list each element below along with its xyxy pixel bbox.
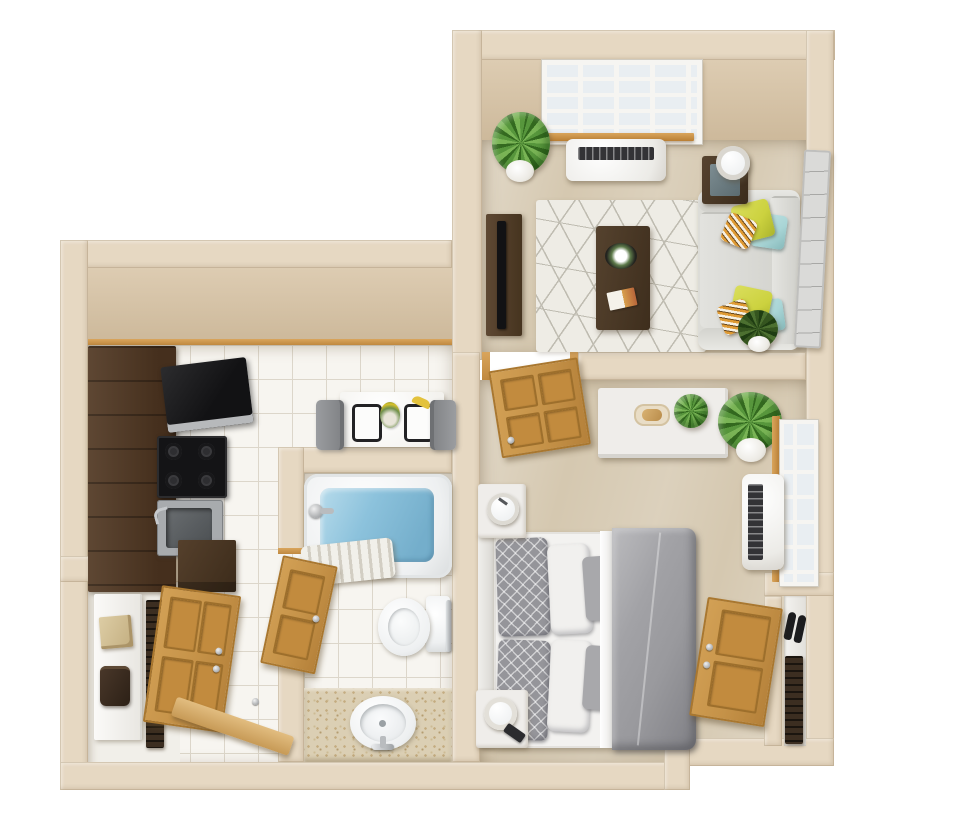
bed-pillow-gray-1	[495, 537, 550, 637]
living-room-ac-grille	[578, 147, 654, 160]
coffee-table	[596, 226, 650, 330]
bed-duvet	[612, 528, 696, 750]
dresser-plant	[674, 394, 708, 428]
entry-door-panel-2	[197, 601, 232, 656]
entry-door-panel-1	[163, 596, 202, 652]
wall-bathroom-left-upper	[278, 447, 304, 554]
wall-right	[806, 30, 834, 766]
wall-kitchen-top	[60, 240, 452, 268]
floor-plan	[0, 0, 977, 828]
coffee-table-flower-bowl	[605, 243, 637, 269]
dining-chair-right	[430, 400, 456, 450]
dining-chair-left	[316, 400, 344, 450]
toilet-grab-bar	[446, 600, 451, 652]
bedroom-ac-grille	[748, 484, 763, 560]
kitchen-lower-cabinet	[178, 540, 236, 592]
wall-kitchen-top-face	[88, 268, 452, 340]
living-room-corner-plant-pot	[748, 336, 770, 352]
wall-living-top	[452, 30, 835, 60]
closet-door-panel-bottom	[707, 661, 764, 714]
wall-living-left	[452, 30, 482, 360]
stove-burner-1	[165, 443, 182, 460]
bedroom-plant-pot	[736, 438, 766, 462]
living-room-plant-pot	[506, 160, 534, 182]
stove-burner-4	[198, 472, 215, 489]
stove-burner-3	[165, 472, 182, 489]
wall-left-outer	[60, 240, 88, 790]
bathroom-door-knob	[312, 615, 320, 623]
wall-living-bedroom-divider	[578, 352, 806, 380]
wall-bathroom-top	[278, 447, 452, 473]
stove-burner-2	[198, 443, 215, 460]
placemat-left	[352, 404, 382, 442]
bedroom-door-panel-1	[500, 374, 539, 411]
closet-door-panel-top	[715, 609, 772, 662]
bathroom-door-panel-bottom	[272, 614, 316, 661]
living-room-window	[542, 60, 702, 144]
closet-door-knob-2	[703, 661, 711, 669]
dresser-tray-bread	[642, 409, 662, 421]
bathtub-spout	[320, 508, 334, 514]
toilet-seat	[388, 608, 420, 646]
entry-floor-stop	[252, 698, 259, 705]
flower-vase	[380, 402, 400, 428]
bedroom-door-panel-2	[537, 368, 576, 405]
nightstand-clock-tray	[487, 493, 519, 525]
wall-bottom-left	[60, 762, 680, 790]
closet-door-knob-1	[705, 643, 713, 651]
living-room-ac-unit	[566, 139, 666, 181]
table-lamp	[716, 146, 750, 180]
microwave	[160, 357, 253, 433]
vanity-faucet-stem	[380, 736, 386, 748]
bathroom-door-panel-top	[282, 569, 326, 616]
vanity-sink-drain	[379, 720, 386, 727]
closet-shoe-rack	[785, 656, 803, 744]
bedroom-door-panel-4	[543, 406, 582, 443]
kitchen-wall-base-trim	[88, 339, 452, 345]
entry-bag	[100, 666, 130, 706]
bedroom-window	[780, 420, 818, 586]
entry-storage-box	[99, 615, 134, 650]
tv	[497, 221, 506, 329]
bedroom-door	[488, 357, 591, 458]
